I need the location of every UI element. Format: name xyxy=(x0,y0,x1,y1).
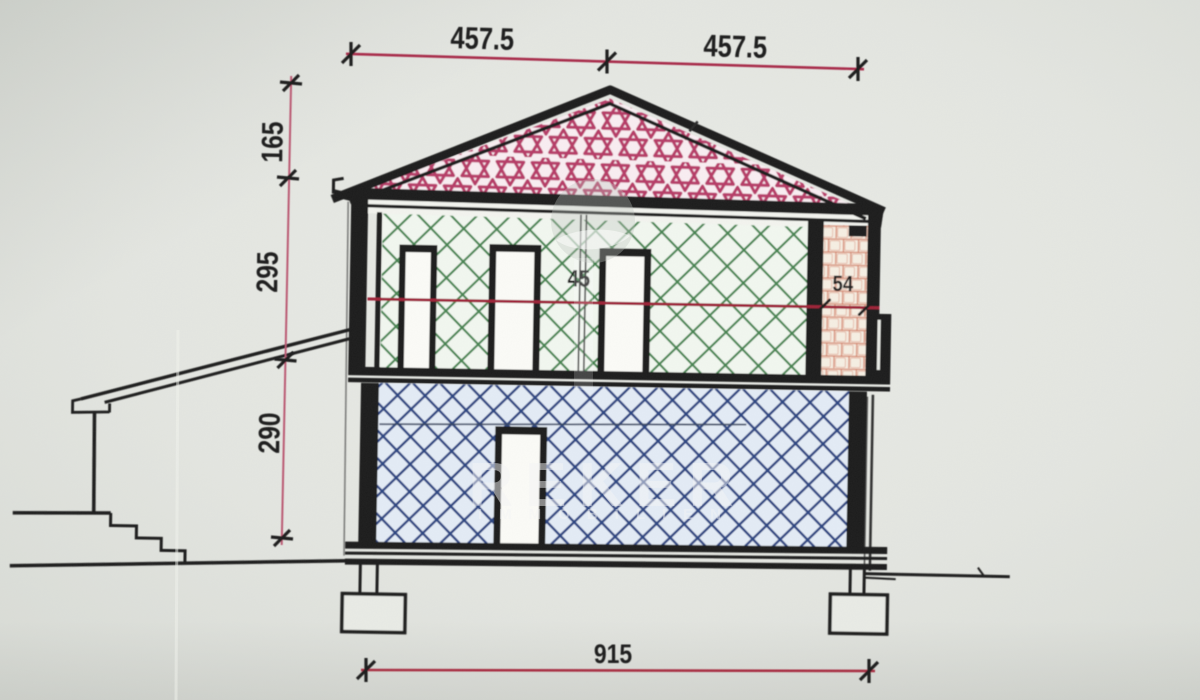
svg-text:IMMOBILIEN: IMMOBILIEN xyxy=(478,506,738,523)
